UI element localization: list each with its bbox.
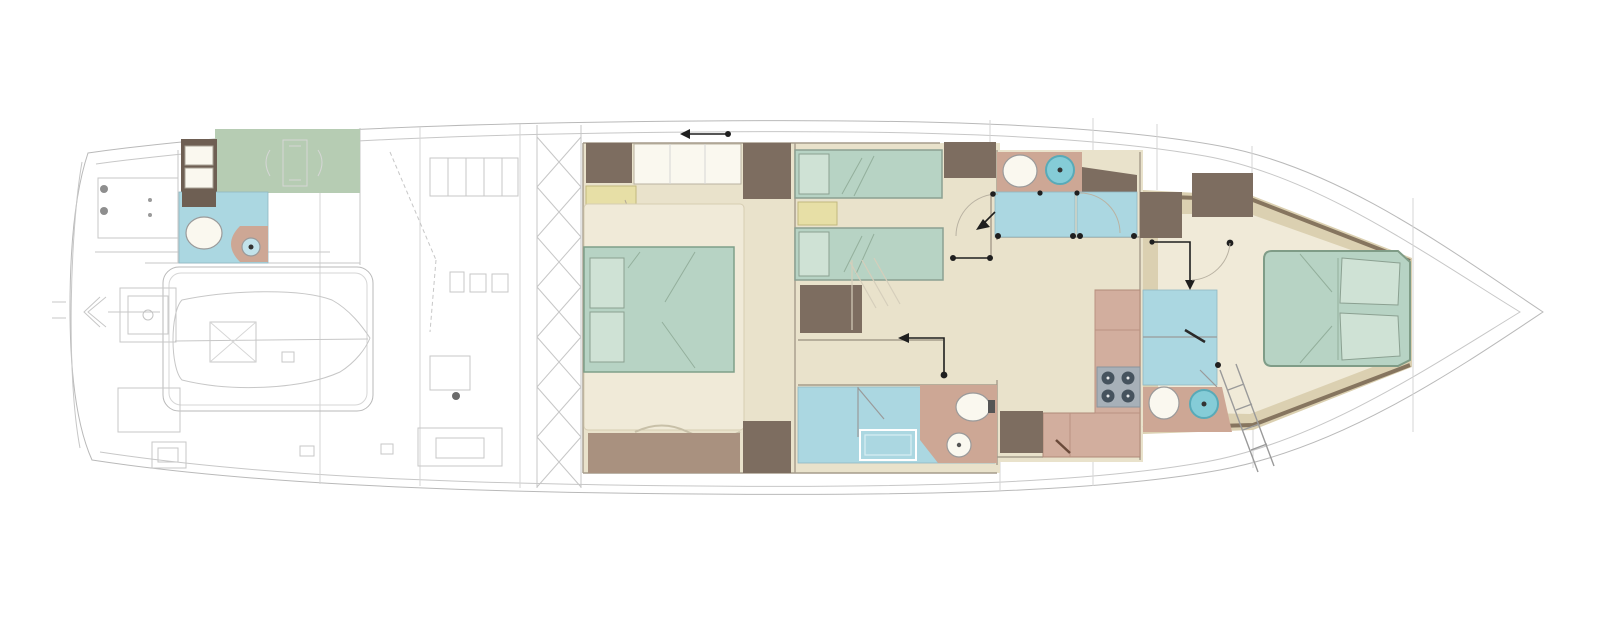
- cooktop: [1097, 367, 1140, 407]
- vip-wardrobe-left: [1140, 192, 1182, 238]
- foyer-wardrobe: [944, 142, 996, 178]
- deck-fitting-dot-6: [452, 392, 460, 400]
- engine-cross-lines: [210, 322, 256, 362]
- deck-hatch-arrowhead: [680, 129, 690, 139]
- master-wardrobe-top-left: [586, 143, 632, 183]
- pivot-dot-6: [1077, 233, 1083, 239]
- crew-washbasin-drain: [249, 245, 254, 250]
- burner-4-dot: [1127, 395, 1130, 398]
- vip-wardrobe-top: [1192, 173, 1253, 217]
- master-wardrobe-top-right: [743, 143, 791, 199]
- crew-mess-floor: [215, 129, 360, 193]
- master-toilet: [956, 393, 990, 421]
- transom-x-bracing: [537, 125, 581, 488]
- twin-wardrobe: [800, 285, 862, 333]
- pivot-dot-5: [1070, 233, 1076, 239]
- master-bed-pillow-1: [590, 258, 624, 308]
- deck-fitting-dot-1: [100, 185, 108, 193]
- master-washbasin-drain: [957, 443, 961, 447]
- master-sofa: [634, 144, 741, 184]
- pivot-dot-4: [995, 233, 1001, 239]
- crew-bunk-upper-berth: [185, 146, 213, 165]
- twin-shower-floor-1: [995, 192, 1075, 237]
- vip-door-dot: [1149, 239, 1154, 244]
- crew-quarters: [179, 129, 360, 263]
- twin-shower-floor-2: [1077, 192, 1137, 237]
- twin-door-dot-a: [950, 255, 956, 261]
- crew-bunk-lower-berth: [185, 168, 213, 188]
- deck-fitting-dot-3: [148, 198, 152, 202]
- floorplan-svg: [0, 0, 1600, 625]
- twin-door-dot-b: [987, 255, 993, 261]
- master-toilet-hinge: [988, 400, 995, 413]
- twin-bed-2-pillow: [799, 232, 829, 276]
- tender-boat-outline: [173, 292, 370, 388]
- crew-cabinet: [182, 191, 216, 207]
- twin-nightstand: [798, 202, 837, 225]
- vip-pillow-1: [1340, 258, 1400, 305]
- vip-pillow-2: [1340, 313, 1400, 360]
- corridor-door-pivot: [941, 372, 948, 379]
- pivot-dot-3: [1074, 190, 1079, 195]
- twin-bed-1-pillow: [799, 154, 829, 194]
- deck-hatch-dot: [725, 131, 731, 137]
- aft-dashed-guides: [390, 152, 436, 332]
- deck-fitting-dot-2: [100, 207, 108, 215]
- vip-washbasin-drain: [1202, 402, 1207, 407]
- master-bed-pillow-2: [590, 312, 624, 362]
- burner-3-dot: [1107, 395, 1110, 398]
- master-dresser-bottom: [588, 433, 740, 473]
- burner-1-dot: [1107, 377, 1110, 380]
- vip-toilet: [1149, 387, 1179, 419]
- pivot-dot-1: [990, 191, 996, 197]
- galley-cabinet: [1000, 411, 1043, 453]
- crew-toilet: [186, 217, 222, 249]
- yacht-floorplan-canvas: [0, 0, 1600, 625]
- pivot-dot-9: [1215, 362, 1221, 368]
- deck-fitting-dot-4: [148, 213, 152, 217]
- twin-washbasin-drain: [1058, 168, 1063, 173]
- pivot-dot-7: [1131, 233, 1137, 239]
- burner-2-dot: [1127, 377, 1130, 380]
- master-wardrobe-bottom-right: [743, 421, 791, 473]
- stern-platform-line: [52, 162, 82, 448]
- twin-toilet: [1003, 155, 1037, 187]
- master-bathroom: [798, 385, 997, 463]
- pivot-dot-2: [1037, 190, 1042, 195]
